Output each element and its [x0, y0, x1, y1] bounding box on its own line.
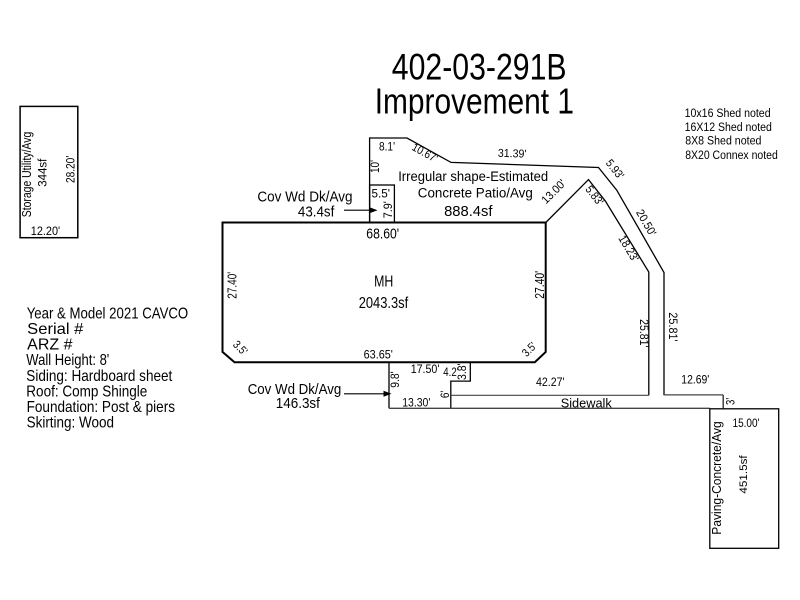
svg-text:MH: MH: [374, 273, 393, 290]
svg-text:12.20': 12.20': [31, 224, 60, 238]
svg-text:25.81': 25.81': [637, 319, 649, 347]
svg-text:42.27': 42.27': [536, 377, 565, 389]
svg-text:27.40': 27.40': [225, 272, 239, 299]
svg-text:8X8 Shed noted: 8X8 Shed noted: [685, 135, 761, 147]
svg-text:31.39': 31.39': [498, 148, 527, 161]
svg-text:17.50': 17.50': [411, 364, 440, 376]
svg-text:9.8': 9.8': [390, 371, 402, 387]
svg-text:Siding: Hardboard sheet: Siding: Hardboard sheet: [26, 368, 173, 385]
svg-text:13.30': 13.30': [402, 397, 430, 409]
svg-text:Foundation: Post & piers: Foundation: Post & piers: [27, 399, 175, 416]
svg-text:888.4sf: 888.4sf: [444, 203, 493, 220]
svg-text:Cov Wd Dk/Avg: Cov Wd Dk/Avg: [257, 190, 352, 206]
svg-text:10x16 Shed noted: 10x16 Shed noted: [685, 108, 771, 120]
svg-text:8X20 Connex noted: 8X20 Connex noted: [685, 150, 778, 162]
svg-text:27.40': 27.40': [533, 271, 547, 299]
svg-text:Year & Model 2021 CAVCO: Year & Model 2021 CAVCO: [27, 305, 189, 322]
svg-text:10': 10': [370, 160, 382, 173]
svg-text:6': 6': [440, 391, 452, 399]
svg-text:ARZ #: ARZ #: [27, 337, 73, 354]
svg-text:344sf: 344sf: [37, 158, 49, 187]
svg-text:7.9': 7.9': [383, 201, 395, 218]
svg-text:3.8': 3.8': [457, 363, 469, 380]
svg-text:Roof: Comp Shingle: Roof: Comp Shingle: [26, 383, 147, 400]
svg-text:Storage Utility/Avg: Storage Utility/Avg: [19, 132, 34, 218]
svg-text:25.81': 25.81': [666, 312, 678, 341]
svg-text:16X12 Shed noted: 16X12 Shed noted: [685, 122, 772, 134]
svg-text:Concrete Patio/Avg: Concrete Patio/Avg: [418, 186, 533, 202]
svg-text:Irregular shape-Estimated: Irregular shape-Estimated: [398, 169, 548, 184]
svg-text:15.00': 15.00': [733, 416, 760, 430]
svg-text:Wall Height: 8': Wall Height: 8': [26, 352, 109, 369]
svg-text:Serial #: Serial #: [27, 321, 83, 338]
svg-text:5.5': 5.5': [372, 189, 391, 201]
svg-text:451.5sf: 451.5sf: [738, 454, 750, 493]
svg-text:Improvement 1: Improvement 1: [375, 81, 574, 122]
svg-text:28.20': 28.20': [63, 156, 77, 183]
svg-text:2043.3sf: 2043.3sf: [359, 295, 409, 312]
svg-text:68.60': 68.60': [366, 225, 399, 242]
svg-text:Skirting: Wood: Skirting: Wood: [27, 415, 114, 432]
svg-text:146.3sf: 146.3sf: [276, 396, 321, 412]
svg-text:3': 3': [725, 398, 737, 405]
svg-text:Paving-Concrete/Avg: Paving-Concrete/Avg: [709, 421, 724, 534]
svg-text:Sidewalk: Sidewalk: [561, 396, 612, 411]
svg-text:8.1': 8.1': [379, 141, 395, 153]
svg-text:63.65': 63.65': [364, 350, 393, 362]
svg-text:12.69': 12.69': [681, 375, 709, 387]
svg-text:43.4sf: 43.4sf: [298, 205, 335, 221]
